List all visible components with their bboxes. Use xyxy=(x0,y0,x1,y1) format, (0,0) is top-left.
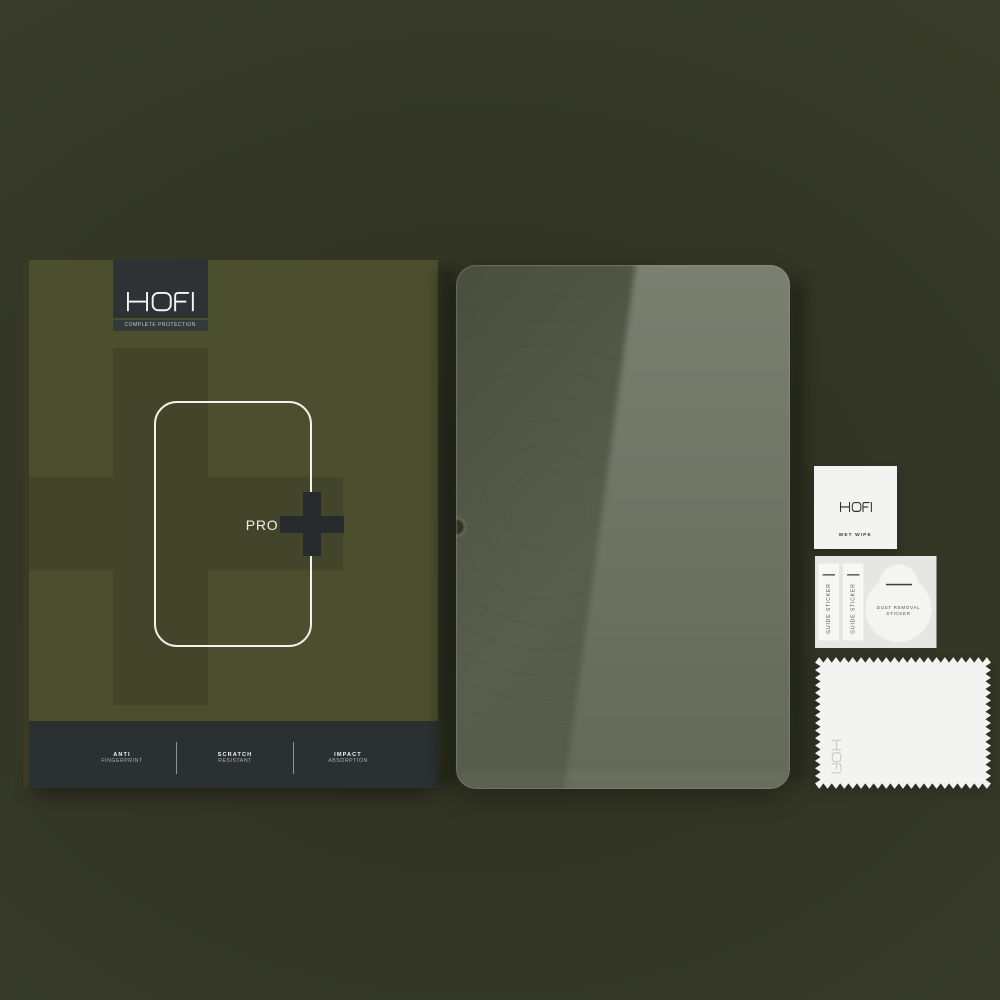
svg-text:GUIDE STICKER: GUIDE STICKER xyxy=(826,583,832,634)
svg-text:DUST REMOVAL: DUST REMOVAL xyxy=(877,605,921,610)
svg-text:GUIDE STICKER: GUIDE STICKER xyxy=(850,583,856,634)
svg-text:STICKER: STICKER xyxy=(886,611,910,616)
